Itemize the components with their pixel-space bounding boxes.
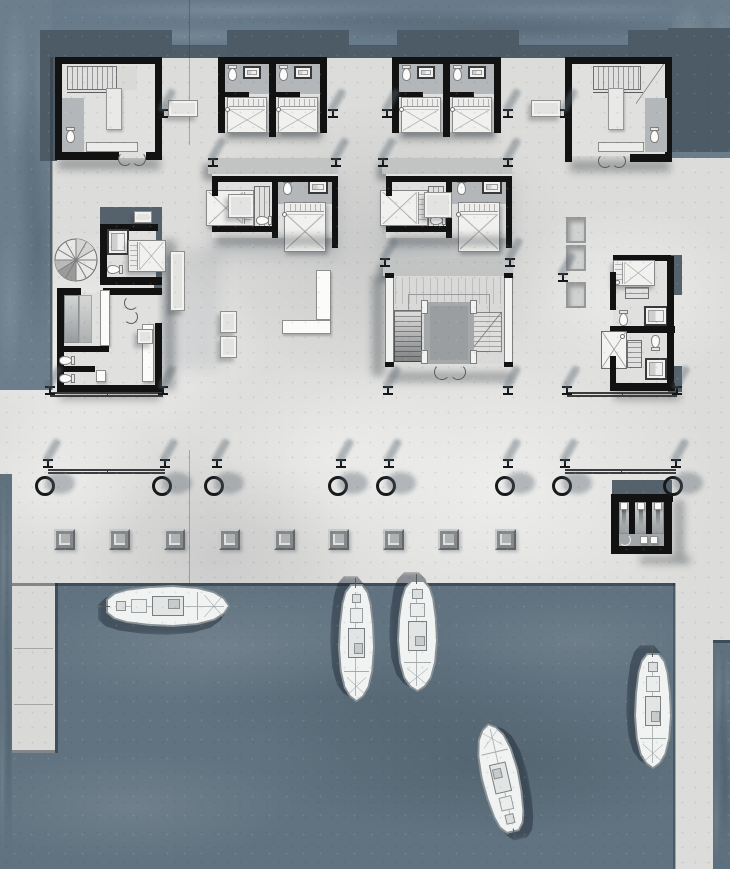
bath-shelf (308, 180, 328, 194)
cabin-hatch (354, 643, 363, 654)
bath-shelf (417, 66, 435, 79)
toilet (228, 68, 237, 81)
pier-end-shadow (12, 750, 55, 753)
deck-table (134, 211, 152, 223)
steel-column (503, 459, 513, 468)
steel-column (560, 109, 570, 118)
deck-edge-shadow (50, 57, 53, 390)
expansion-joint (189, 0, 190, 57)
wall (146, 152, 162, 160)
steel-column (558, 273, 568, 282)
bow-deck-lines (204, 595, 223, 617)
steel-column (212, 459, 222, 468)
door-swing-arc (450, 364, 466, 380)
steel-column (505, 258, 515, 267)
toilet (66, 130, 75, 143)
wall (100, 277, 162, 285)
staircase (67, 66, 117, 90)
steel-column (328, 109, 338, 118)
floor-drain (650, 536, 658, 544)
deck-table (170, 251, 185, 311)
shower-stream (639, 510, 643, 526)
stern-locker (412, 589, 423, 598)
desk (608, 88, 624, 130)
stern-locker (116, 601, 126, 612)
deck-stool (109, 529, 130, 550)
bath-shelf (644, 306, 668, 326)
deck-beam (344, 671, 368, 672)
cockpit (350, 608, 363, 623)
light-beam (100, 290, 110, 346)
steel-column (671, 459, 681, 468)
core-column (470, 300, 477, 314)
bath-shelf (468, 66, 486, 79)
cabin-hatch (168, 599, 180, 609)
toilet (59, 356, 72, 365)
steel-column (384, 459, 394, 468)
desk (106, 88, 122, 130)
boat-deck-details (638, 657, 668, 765)
steel-column (380, 258, 390, 267)
boat-moored-east (634, 653, 672, 769)
cabin-hatch (651, 711, 660, 722)
bed (128, 240, 166, 272)
steel-column (45, 386, 55, 395)
shower-stream (622, 510, 626, 526)
building-shadow (216, 236, 334, 246)
toilet (651, 335, 660, 348)
kitchen-shelf (107, 229, 129, 255)
shower-head (637, 502, 645, 510)
building-shadow (390, 236, 508, 246)
structural-column (385, 276, 394, 364)
toilet (256, 216, 269, 225)
deck-table (228, 194, 254, 218)
steel-column (160, 459, 170, 468)
deck-stool (54, 529, 75, 550)
counter (86, 142, 138, 152)
wardrobe (625, 287, 649, 299)
bow-deck-lines (643, 745, 662, 762)
wall (55, 57, 62, 160)
deck-stool (164, 529, 185, 550)
wall (212, 176, 218, 196)
deck-table (168, 100, 198, 117)
deck-table (137, 329, 153, 344)
stair-landing (117, 66, 137, 90)
cockpit (498, 795, 515, 812)
steel-column (331, 158, 341, 167)
deck-beam (640, 738, 665, 739)
wall (630, 154, 672, 162)
toilet (650, 130, 659, 143)
mooring-bollard (552, 476, 572, 496)
door-swing-arc (132, 152, 146, 166)
column-cap (504, 362, 513, 367)
steel-column (503, 386, 513, 395)
wall (218, 57, 225, 133)
toilet (283, 182, 292, 195)
wall (55, 57, 162, 64)
wall (565, 57, 672, 64)
toilet (107, 265, 120, 274)
stall-divider (646, 502, 652, 534)
cabin-hatch (491, 767, 502, 779)
shower-head (620, 502, 628, 510)
mooring-bollard (204, 476, 224, 496)
deck-stool (274, 529, 295, 550)
steel-column (43, 459, 53, 468)
stair-shadow (372, 276, 384, 376)
water-bottom-right (713, 640, 730, 869)
roof-shadow (40, 30, 172, 58)
deck-table (220, 336, 237, 358)
elevator-cab (430, 306, 468, 360)
wall (212, 226, 274, 232)
steel-column (382, 109, 392, 118)
mooring-line (100, 606, 110, 607)
wall (100, 224, 107, 284)
mooring-bollard (495, 476, 515, 496)
shower-stream (656, 510, 660, 526)
door-swing-arc (619, 534, 631, 546)
bed (401, 97, 441, 133)
deck-stool (495, 529, 516, 550)
door-swing-arc (118, 152, 132, 166)
wall (611, 546, 672, 554)
door-swing-arc (612, 154, 626, 168)
toilet (279, 68, 288, 81)
core-column (470, 350, 477, 364)
boat-moored-center (397, 580, 438, 692)
expansion-joint (189, 450, 190, 583)
wall (57, 288, 81, 295)
staircase (593, 66, 641, 90)
steel-column (560, 459, 570, 468)
stern-locker (351, 594, 360, 604)
deck-table (220, 311, 237, 333)
water-left-strip (0, 474, 12, 869)
pier (12, 583, 55, 753)
toilet (453, 68, 462, 81)
bed (452, 97, 492, 133)
spiral-staircase (54, 238, 98, 282)
roof-shadow (227, 30, 349, 58)
bow-deck-lines (406, 668, 427, 685)
bed-knob (620, 334, 625, 339)
cockpit (131, 599, 147, 614)
bathroom-floor (645, 98, 667, 152)
toilet (619, 313, 628, 326)
wall (103, 288, 162, 295)
steel-column (158, 386, 168, 395)
door-swing-arc (124, 296, 138, 310)
boat-deck-details (342, 588, 371, 698)
column-cap (385, 273, 394, 278)
stair-roof-slab (383, 258, 513, 276)
structural-column (504, 276, 513, 364)
pier-joint (14, 648, 53, 649)
shower-head (654, 502, 662, 510)
wall (320, 57, 327, 133)
deck-stool (383, 529, 404, 550)
toilet (402, 68, 411, 81)
deck-stool (328, 529, 349, 550)
wall (664, 494, 672, 554)
steel-column (672, 386, 682, 395)
steel-column (562, 386, 572, 395)
mooring-bollard (328, 476, 348, 496)
roof-shadow (397, 30, 519, 58)
wall (610, 383, 675, 391)
corridor-glass (79, 295, 92, 343)
deck-table (424, 192, 452, 218)
column-cap (504, 273, 513, 278)
stall-divider (629, 502, 635, 534)
mooring-bollard (152, 476, 172, 496)
roof-shadow-over-water (668, 28, 730, 152)
wall (386, 226, 448, 232)
bed (278, 97, 318, 133)
mooring-line (416, 574, 417, 584)
sink (96, 370, 106, 382)
steel-column (503, 109, 513, 118)
steel-column (383, 386, 393, 395)
deck-stool (438, 529, 459, 550)
l-sofa (282, 320, 331, 334)
door-swing-arc (434, 364, 450, 380)
deck-beam (403, 662, 431, 663)
cabin-hatch (414, 636, 424, 646)
wall (443, 57, 450, 137)
deck-table (531, 100, 561, 117)
stern-locker (504, 813, 516, 824)
l-sofa (316, 270, 331, 320)
wall (386, 176, 392, 196)
deck-beam (197, 592, 198, 621)
stair-break-line (470, 312, 502, 352)
planter-box (566, 282, 586, 308)
door-swing-arc (124, 310, 138, 324)
core-column (421, 350, 428, 364)
counter (598, 142, 644, 152)
bath-shelf (294, 66, 312, 79)
steel-column (336, 459, 346, 468)
steel-column (378, 158, 388, 167)
boat-deck-details (401, 584, 434, 688)
wall (55, 152, 119, 160)
stall-shadow (674, 500, 684, 558)
core-column (421, 300, 428, 314)
bath-shelf (482, 180, 502, 194)
bath-shelf (645, 358, 667, 380)
wall (57, 346, 109, 352)
mooring-bollard (376, 476, 396, 496)
wall (269, 57, 276, 137)
boat-deck-details (110, 589, 226, 623)
wall (57, 385, 162, 392)
floor-drain (640, 536, 648, 544)
wall (667, 256, 674, 328)
canopy-slab (382, 158, 512, 174)
guardrail (50, 392, 163, 397)
cockpit (410, 603, 425, 618)
planter-box (566, 217, 586, 243)
toilet (59, 374, 72, 383)
boat-moored-west (106, 585, 230, 627)
stair-depth-shade (394, 310, 422, 362)
quay-edge-shadow (673, 583, 676, 869)
mooring-bollard (663, 476, 683, 496)
wardrobe (627, 340, 642, 368)
wall (611, 494, 619, 554)
pier-edge-shadow (55, 583, 58, 753)
mooring-line (652, 647, 653, 657)
quay-edge-shadow (713, 640, 730, 643)
stern-locker (648, 662, 658, 672)
mooring-bollard (35, 476, 55, 496)
pier-joint (14, 704, 53, 705)
mooring-line (355, 578, 356, 588)
bow-deck-lines (347, 677, 366, 695)
wall (494, 57, 501, 133)
deck-stool (219, 529, 240, 550)
corridor-glass (64, 295, 79, 343)
bathroom-floor (62, 98, 84, 152)
bed (227, 97, 267, 133)
architectural-site-plan: Waterfront hotel deck — ground floor pla… (0, 0, 730, 869)
canopy-slab (208, 158, 338, 174)
bow-deck-lines (479, 728, 502, 749)
steel-column (503, 158, 513, 167)
bath-shelf (243, 66, 261, 79)
steel-column (158, 109, 168, 118)
steel-column (208, 158, 218, 167)
roof-shadow (628, 30, 672, 58)
cockpit (646, 676, 659, 691)
door-swing-arc (598, 154, 612, 168)
wall (610, 272, 616, 310)
stall-shadow (640, 556, 690, 564)
boat-moored-center-left (338, 584, 375, 702)
guardrail (567, 392, 677, 397)
toilet (457, 182, 466, 195)
